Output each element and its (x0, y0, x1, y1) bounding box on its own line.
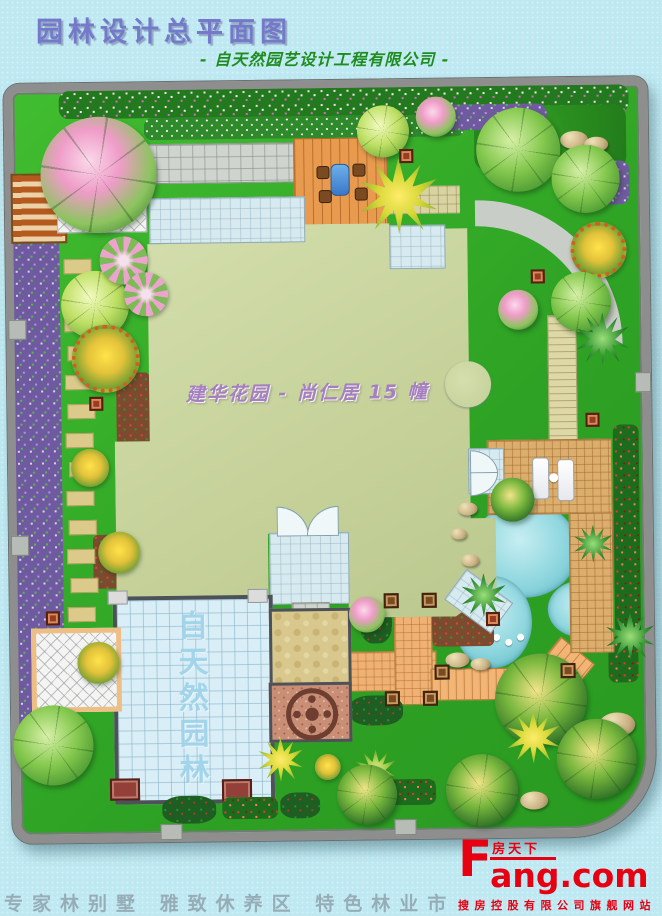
garden-chair (319, 190, 332, 203)
garden-lamp (486, 612, 500, 626)
shrub-yellow-small (315, 754, 341, 780)
shrub-row (162, 795, 216, 824)
lounge-chair (532, 457, 550, 499)
wood-post (384, 593, 399, 608)
fang-logo-initial: F (458, 838, 490, 880)
wood-post (422, 593, 437, 608)
flower-border-right (613, 424, 642, 636)
plaza-pillar (108, 590, 128, 604)
stepping-stone (70, 578, 98, 593)
garden-chair (355, 188, 368, 201)
wood-post (385, 691, 400, 706)
stepping-dot (517, 634, 524, 641)
deck-table (549, 473, 558, 482)
fang-logo-rest: ang.com (490, 856, 649, 895)
garden-lamp (585, 413, 599, 427)
fang-tagline: 搜房控股有限公司旗舰网站 (458, 897, 658, 913)
paved-path-top (143, 142, 295, 184)
stepping-stone (66, 491, 94, 506)
porch-top-right (389, 225, 446, 270)
wall-pillar (160, 824, 182, 840)
wall-pillar (394, 819, 416, 835)
wall-pillar (8, 320, 26, 340)
building-label: 建华花园 - 尚仁居 15 幢 (125, 376, 489, 407)
garden-chair (352, 164, 365, 177)
fang-logo: F房天下ang.com 搜房控股有限公司旗舰网站 (458, 838, 658, 913)
garden-table (330, 164, 349, 196)
plaza-watermark: 自天然园林 (167, 609, 213, 790)
garden-lamp (89, 397, 103, 411)
garden-lamp (399, 149, 413, 163)
garden-lamp (531, 269, 545, 283)
garden-chair (316, 166, 329, 179)
wall-pillar (635, 372, 651, 392)
bottom-cutoff-text: 专家林别墅 雅致休养区 特色林业市 (4, 889, 455, 916)
shrub-row (280, 792, 320, 818)
plaza-pillar-red (110, 778, 140, 800)
stepping-stone (66, 433, 94, 448)
garden-lamp (46, 611, 60, 625)
cobble-court (269, 608, 352, 687)
company-subtitle: - 自天然园艺设计工程有限公司 - (200, 46, 449, 70)
lounge-chair (557, 459, 575, 501)
garden-plan-page: { "header": { "title": "园林设计总平面图", "subt… (0, 0, 662, 900)
porch-top-left (149, 196, 306, 244)
plaza-pillar (248, 589, 268, 603)
wood-post (560, 663, 575, 678)
brick-path-right (547, 315, 578, 443)
wood-post (423, 691, 438, 706)
stepping-stone (68, 607, 96, 622)
garden-plan: 建华花园 - 尚仁居 15 幢 自天然园林 (3, 76, 656, 844)
stepping-dot (505, 639, 512, 646)
wall-pillar (11, 536, 29, 556)
flower-patch-bottom (222, 797, 278, 820)
porch-bottom (269, 532, 350, 605)
wood-post (435, 665, 450, 680)
page-title: 园林设计总平面图 (36, 10, 292, 49)
stepping-stone (67, 549, 95, 564)
stepping-stone (69, 520, 97, 535)
